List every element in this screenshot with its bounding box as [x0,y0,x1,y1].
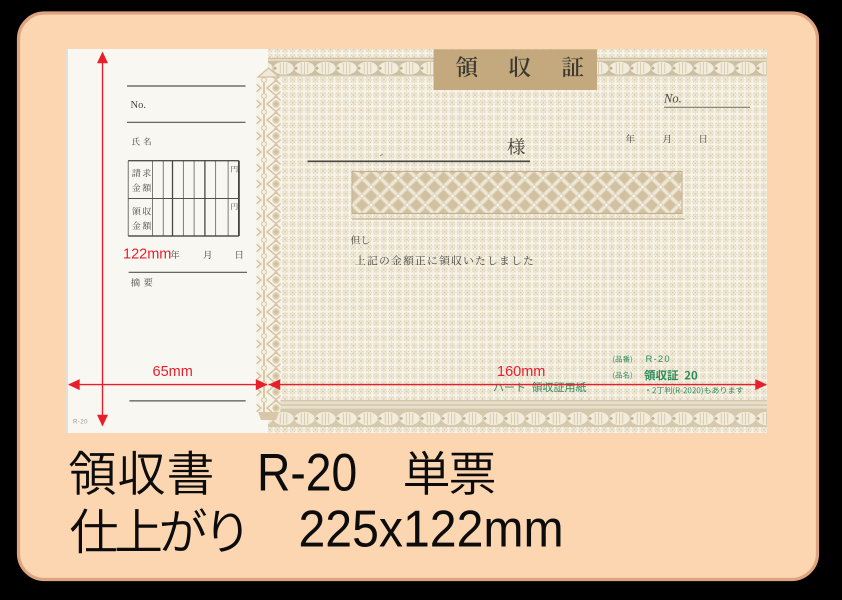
svg-text:No.: No. [663,92,682,106]
svg-text:R-20: R-20 [73,420,88,426]
svg-text:225x122mm: 225x122mm [299,500,564,558]
svg-text:65mm: 65mm [153,364,193,380]
svg-text:160mm: 160mm [497,364,545,380]
svg-text:No.: No. [131,100,146,111]
svg-text:122mm: 122mm [123,247,171,263]
svg-text:R-20: R-20 [646,354,671,365]
svg-text:R-20: R-20 [257,443,357,503]
